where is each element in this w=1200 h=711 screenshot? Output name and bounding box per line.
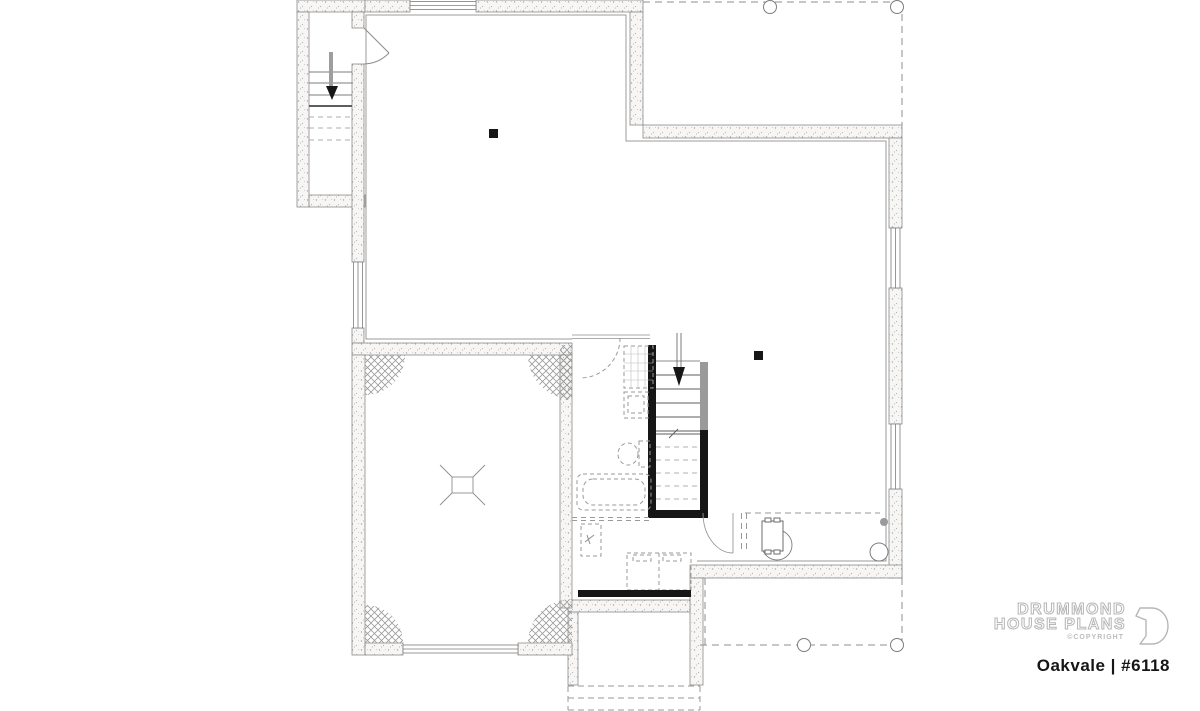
- door-swing-icon: [580, 338, 620, 378]
- door-swing-icon: [703, 513, 733, 553]
- central-staircase: [648, 333, 708, 518]
- vanity-icon: [624, 392, 648, 418]
- base-cabinet: [627, 553, 691, 590]
- support-post-icon: [754, 351, 763, 360]
- future-bathroom: [572, 335, 691, 590]
- insulated-wall: [578, 590, 691, 597]
- support-posts: [489, 129, 763, 360]
- floor-plan-canvas: DRUMMOND HOUSE PLANS ©COPYRIGHT Oakvale …: [0, 0, 1200, 711]
- porch-steps-outline: [568, 686, 700, 710]
- porch-post-icon: [798, 639, 811, 652]
- brand-wordmark: DRUMMOND HOUSE PLANS ©COPYRIGHT: [994, 602, 1126, 641]
- foundation-walls: [297, 0, 902, 685]
- brand-line1: DRUMMOND: [994, 602, 1126, 617]
- bathtub-icon: [577, 474, 651, 510]
- brand-logo: DRUMMOND HOUSE PLANS ©COPYRIGHT Oakvale …: [985, 602, 1170, 676]
- window-icon: [354, 262, 363, 328]
- garage-door-opening: [403, 645, 518, 653]
- window-icon: [891, 424, 900, 489]
- mechanical-area: [703, 513, 888, 561]
- interior-finish-line: [366, 15, 886, 561]
- stair-half-wall: [700, 362, 708, 430]
- door-swing-icon: [364, 28, 389, 64]
- garage-foundation: [365, 345, 572, 643]
- porch-posts: [764, 1, 904, 14]
- drummond-logo-icon: [1130, 604, 1170, 650]
- plan-name: Oakvale | #6118: [985, 656, 1170, 676]
- laundry-tub-icon: [581, 524, 601, 556]
- concrete-corner-pads: [365, 345, 572, 643]
- porch-post-icon: [891, 1, 904, 14]
- window-icon: [891, 228, 900, 288]
- sump-pit-icon: [870, 543, 888, 561]
- rear-porch-outline: [700, 578, 902, 645]
- copyright-label: ©COPYRIGHT: [994, 634, 1124, 641]
- brand-line2: HOUSE PLANS: [994, 617, 1126, 632]
- toilet-icon: [618, 441, 650, 467]
- porch-post-icon: [764, 1, 777, 14]
- support-post-icon: [489, 129, 498, 138]
- front-porch-outline: [643, 2, 905, 125]
- furnace-icon: [762, 518, 783, 554]
- floor-drain-icon: [440, 465, 485, 505]
- porch-post-icon: [891, 639, 904, 652]
- down-arrow-icon: [673, 333, 685, 386]
- down-arrow-icon: [326, 52, 338, 100]
- floor-drain-icon: [880, 518, 888, 526]
- window-icon: [410, 2, 476, 10]
- exterior-stairwell: [309, 28, 389, 140]
